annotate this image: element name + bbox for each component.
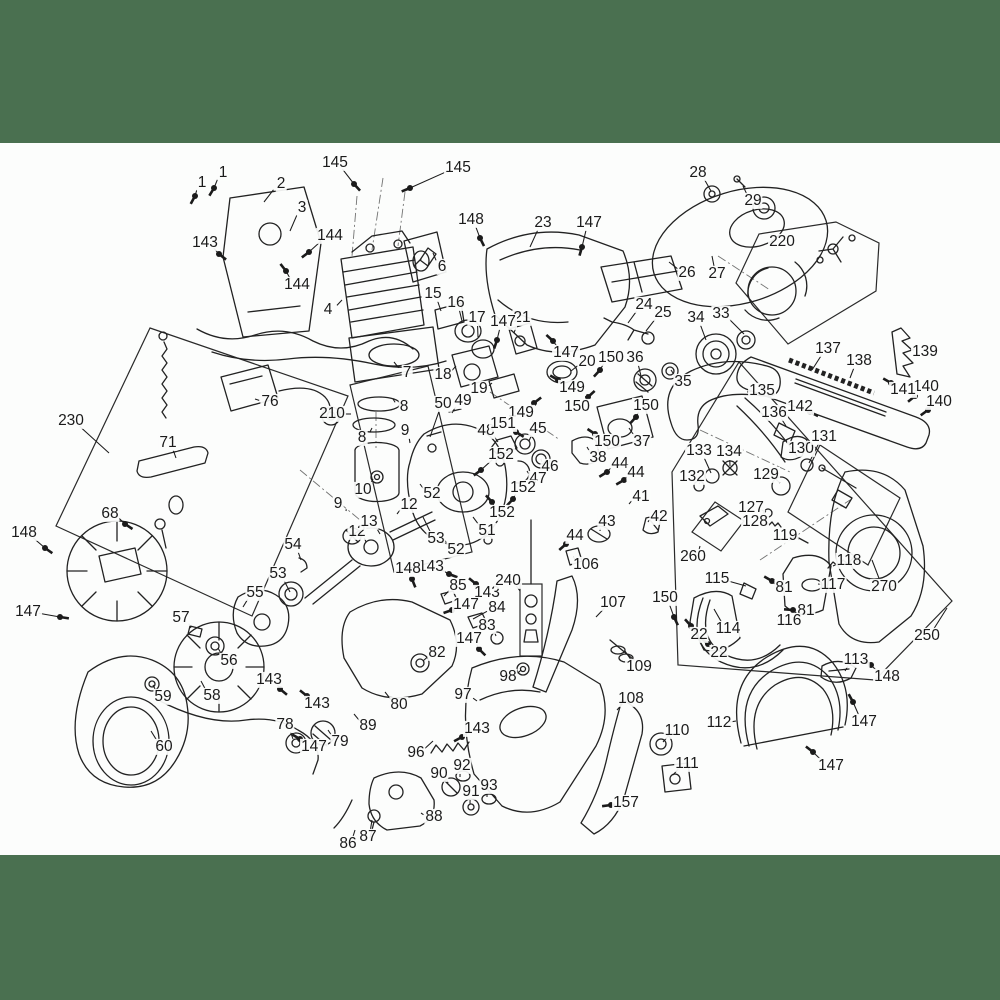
fastener-head-icon bbox=[807, 409, 813, 415]
top-band bbox=[0, 0, 1000, 143]
fastener-head-icon bbox=[790, 607, 796, 613]
leader-line-109 bbox=[625, 651, 632, 661]
leader-line-132 bbox=[699, 483, 700, 484]
fastener-head-icon bbox=[585, 394, 591, 400]
fastener-head-icon bbox=[489, 499, 495, 505]
fastener-head-icon bbox=[592, 431, 598, 437]
fastener-head-icon bbox=[297, 736, 303, 742]
fastener-head-icon bbox=[604, 469, 610, 475]
assembly-box-230 bbox=[56, 328, 348, 616]
fastener-head-icon bbox=[769, 578, 775, 584]
fastener-head-icon bbox=[912, 393, 918, 399]
handlebar-loop-drawing bbox=[737, 646, 848, 749]
fastener-head-icon bbox=[477, 235, 483, 241]
leader-line-45 bbox=[529, 435, 531, 441]
leader-line-137 bbox=[812, 355, 821, 370]
leader-line-89 bbox=[354, 714, 360, 721]
brake-lever-drawing bbox=[783, 555, 831, 614]
fastener-head-icon bbox=[621, 477, 627, 483]
starter-housing-drawing bbox=[75, 656, 188, 787]
leader-line-41 bbox=[629, 501, 631, 504]
clutch-drum-drawing bbox=[696, 334, 736, 374]
leader-line-97 bbox=[473, 698, 477, 701]
fastener-head-icon bbox=[810, 749, 816, 755]
fastener-head-icon bbox=[407, 185, 413, 191]
assembly-box-220 bbox=[736, 222, 879, 344]
fastener-head-icon bbox=[478, 467, 484, 473]
leader-line-106 bbox=[573, 557, 577, 561]
leader-line-33 bbox=[729, 319, 744, 334]
leader-line-12 bbox=[364, 538, 366, 542]
crankcase-lower-drawing bbox=[342, 600, 457, 698]
leader-line-60 bbox=[151, 731, 157, 741]
fastener-head-icon bbox=[277, 686, 283, 692]
leader-line-58 bbox=[201, 681, 205, 690]
leader-line-260 bbox=[699, 546, 700, 550]
fastener-head-icon bbox=[850, 699, 856, 705]
leader-line-88 bbox=[421, 813, 423, 815]
crankshaft-drawing bbox=[305, 512, 435, 604]
fastener-head-icon bbox=[216, 251, 222, 257]
rear-handle-drawing bbox=[581, 700, 643, 834]
fastener-head-icon bbox=[671, 614, 677, 620]
fastener-head-icon bbox=[306, 249, 312, 255]
fastener-head-icon bbox=[459, 734, 465, 740]
muffler-drawing bbox=[223, 187, 321, 337]
saw-chain-drawing bbox=[789, 360, 874, 393]
guide-bar-drawing bbox=[737, 357, 930, 449]
fastener-head-icon bbox=[211, 185, 217, 191]
fastener-head-icon bbox=[192, 193, 198, 199]
assembly-box-260 bbox=[692, 502, 744, 551]
av-spring-drawing bbox=[431, 742, 469, 753]
starter-handle-drawing bbox=[137, 447, 208, 548]
fastener-head-icon bbox=[555, 377, 561, 383]
handle-barrel-drawing bbox=[774, 423, 795, 443]
tank-bottom-drawing bbox=[369, 772, 434, 830]
assembly-box-270 bbox=[788, 445, 900, 565]
fastener-head-icon bbox=[476, 646, 482, 652]
fastener-head-icon bbox=[351, 181, 357, 187]
fastener-head-icon bbox=[449, 607, 455, 613]
filter-cover-drawing bbox=[638, 167, 843, 327]
oiler-worm-drawing bbox=[566, 517, 660, 565]
airbox-drawing bbox=[486, 232, 630, 352]
throttle-rod-drawing bbox=[158, 700, 380, 838]
brake-spring-drawing bbox=[828, 558, 858, 568]
fastener-head-icon bbox=[563, 541, 569, 547]
cylinder-drawing bbox=[341, 231, 424, 338]
starter-spring-drawing bbox=[159, 332, 167, 418]
leader-line-270 bbox=[872, 560, 880, 580]
leader-line-9 bbox=[409, 438, 410, 443]
ignition-coil-drawing bbox=[221, 365, 340, 425]
parts-diagram-page: 1123143144144145145467151617181920212324… bbox=[0, 0, 1000, 1000]
leader-line-138 bbox=[850, 368, 854, 378]
crankcase-drawing bbox=[407, 424, 506, 545]
leader-line-4 bbox=[337, 300, 342, 305]
fastener-head-icon bbox=[304, 693, 310, 699]
fastener-head-icon bbox=[446, 571, 452, 577]
fastener-head-icon bbox=[57, 614, 63, 620]
leader-line-230 bbox=[79, 426, 109, 453]
fastener-head-icon bbox=[409, 576, 415, 582]
fastener-head-icon bbox=[550, 338, 556, 344]
leader-line-131 bbox=[809, 444, 819, 463]
leader-line-27 bbox=[712, 256, 714, 266]
leader-line-107 bbox=[596, 608, 605, 617]
oil-pump-plate-drawing bbox=[572, 396, 653, 464]
leader-line-46 bbox=[541, 459, 542, 462]
seals-drawing bbox=[427, 409, 550, 483]
leader-line-12 bbox=[397, 510, 400, 514]
leader-line-96 bbox=[425, 741, 433, 748]
leader-line-145 bbox=[410, 171, 448, 188]
leader-line-3 bbox=[290, 215, 297, 231]
fastener-head-icon bbox=[42, 545, 48, 551]
leader-line-86 bbox=[353, 830, 355, 837]
leader-line-16 bbox=[459, 311, 462, 321]
fastener-head-icon bbox=[705, 641, 711, 647]
chain-guard-drawing bbox=[690, 583, 756, 651]
leader-line-114 bbox=[714, 609, 722, 622]
fastener-head-icon bbox=[283, 268, 289, 274]
recoil-pulley-drawing bbox=[67, 521, 167, 621]
leader-line-42 bbox=[648, 520, 649, 522]
trigger-blade-drawing bbox=[533, 576, 578, 692]
fastener-head-icon bbox=[608, 802, 614, 808]
alignment-lines bbox=[300, 178, 850, 560]
leader-line-112 bbox=[730, 721, 736, 722]
fastener-head-icon bbox=[473, 581, 479, 587]
leader-line-76 bbox=[255, 399, 259, 400]
leader-line-24 bbox=[628, 311, 637, 323]
carburetor-drawing bbox=[435, 303, 537, 398]
wiring-drawing bbox=[197, 329, 446, 367]
leader-line-47 bbox=[527, 471, 529, 474]
fastener-head-icon bbox=[597, 367, 603, 373]
fastener-head-icon bbox=[513, 429, 519, 435]
muffler-gasket-drawing bbox=[404, 232, 446, 282]
bottom-band bbox=[0, 855, 1000, 1000]
leader-line-51 bbox=[473, 517, 479, 525]
fuel-filter-drawing bbox=[442, 771, 496, 815]
leader-line-38 bbox=[587, 447, 590, 452]
flywheel-drawing bbox=[174, 622, 264, 712]
fastener-head-icon bbox=[688, 623, 694, 629]
caps-drawing bbox=[286, 721, 335, 753]
leader-line-55 bbox=[243, 599, 248, 607]
leader-line-52 bbox=[420, 484, 424, 489]
fastener-head-icon bbox=[868, 662, 874, 668]
bucking-spike-drawing bbox=[892, 328, 913, 377]
fastener-head-icon bbox=[494, 337, 500, 343]
brake-band-drawing bbox=[697, 598, 783, 668]
leader-line-21 bbox=[514, 325, 517, 333]
drum-washer-drawing bbox=[737, 331, 755, 349]
fastener-head-icon bbox=[122, 521, 128, 527]
switch-drawing bbox=[662, 763, 691, 792]
leader-line-25 bbox=[646, 319, 655, 331]
fastener-head-icon bbox=[531, 400, 537, 406]
leader-line-113 bbox=[845, 666, 848, 671]
exploded-diagram bbox=[0, 0, 1000, 1000]
fastener-head-icon bbox=[633, 414, 639, 420]
fastener-head-icon bbox=[510, 496, 516, 502]
spark-plug-icon bbox=[414, 248, 436, 266]
leader-line-129 bbox=[776, 479, 780, 483]
leader-line-82 bbox=[423, 657, 427, 661]
fastener-head-icon bbox=[925, 407, 931, 413]
fastener-head-icon bbox=[579, 244, 585, 250]
leader-line-80 bbox=[385, 692, 391, 700]
leader-line-147 bbox=[39, 613, 60, 617]
intake-gasket-drawing bbox=[547, 361, 577, 383]
piston-drawing bbox=[355, 442, 399, 501]
leader-line-79 bbox=[328, 730, 332, 736]
fastener-head-icon bbox=[888, 380, 894, 386]
assembly-box-250 bbox=[672, 362, 952, 680]
sprocket-cover-drawing bbox=[829, 470, 925, 642]
